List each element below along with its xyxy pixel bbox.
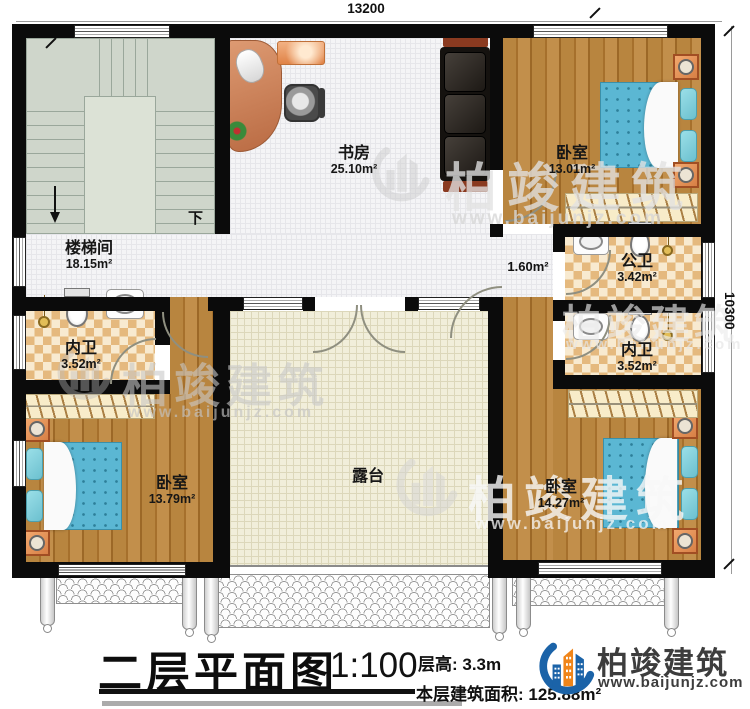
shower-head (38, 316, 50, 328)
watermark-site: www.baijunjz.com (475, 514, 670, 534)
window-hall-left (13, 237, 26, 287)
dimension-line-top (16, 21, 722, 22)
shower-head (662, 245, 673, 256)
label-bedroom-tr: 卧室 13.01m² (549, 145, 596, 176)
title-underline (99, 689, 415, 694)
column-finial (185, 628, 194, 637)
nightstand (24, 416, 50, 442)
watermark-site: www.baijunjz.com (452, 208, 664, 230)
dimension-tick (723, 25, 734, 36)
dimension-top-value: 13200 (330, 1, 402, 16)
label-stairs-down: 下 (188, 207, 203, 228)
nightstand (24, 530, 50, 556)
chair-armrest (318, 88, 325, 118)
column-finial (667, 628, 676, 637)
label-bath-public: 公卫 3.42m² (617, 253, 657, 284)
side-table (277, 41, 325, 65)
watermark-site: www.baijunjz.com (128, 404, 314, 422)
window-bedroom-br-bottom (538, 562, 662, 575)
pillow (26, 490, 43, 522)
window-bedroom-bl-bottom (58, 564, 186, 576)
room-area: 3.42m² (617, 271, 657, 285)
floor-height-label: 层高: 3.3m (418, 650, 501, 675)
window-stairwell-top (74, 25, 170, 38)
room-area: 13.01m² (549, 163, 596, 177)
room-area: 14.27m² (538, 497, 585, 511)
stair-arrow-stem (54, 186, 56, 214)
label-hall-area: 1.60m² (507, 259, 548, 274)
plan-scale: 1:100 (330, 646, 418, 686)
dimension-right-value: 10300 (722, 292, 737, 330)
label-terrace: 露台 (352, 468, 384, 486)
pillow (680, 88, 697, 120)
floorplan-canvas: 柏竣建筑 www.baijunjz.com 柏竣建筑 www.baijunjz.… (0, 0, 750, 709)
sofa-cushion (444, 52, 486, 92)
label-stairwell: 楼梯间 18.15m² (65, 240, 113, 271)
label-bath-right: 内卫 3.52m² (617, 342, 657, 373)
brand-website: www.baijunjz.com (598, 674, 743, 691)
potted-plant (227, 120, 247, 142)
porch-column (664, 570, 679, 630)
porch-column (182, 570, 197, 630)
label-bedroom-br: 卧室 14.27m² (538, 479, 585, 510)
room-name: 公卫 (617, 253, 657, 271)
room-name: 卧室 (538, 479, 585, 497)
office-chair (284, 84, 320, 122)
dimension-tick (589, 7, 600, 18)
room-area: 3.52m² (61, 358, 101, 372)
stair-landing (84, 96, 156, 234)
room-name: 露台 (352, 468, 384, 486)
room-name: 卧室 (549, 145, 596, 163)
dimension-tick (723, 558, 734, 569)
nightstand (673, 54, 699, 80)
title-underline-secondary (102, 701, 462, 706)
room-area: 3.52m² (617, 360, 657, 374)
room-area: 25.10m² (331, 163, 378, 177)
porch-column (40, 570, 55, 626)
blanket (44, 442, 76, 530)
wardrobe-bottom-right (568, 390, 698, 418)
window-bedroom-bl-left (13, 440, 26, 487)
wall-bath-public-left-stub (553, 237, 565, 252)
bed-bottom-left (26, 442, 122, 530)
room-area: 13.79m² (149, 493, 196, 507)
room-name: 楼梯间 (65, 240, 113, 258)
wall-terrace-left (213, 297, 230, 567)
window-bedroom-tr-top (533, 25, 668, 38)
porch-column (204, 574, 219, 636)
nightstand (672, 528, 698, 554)
room-name: 内卫 (61, 340, 101, 358)
stair-right-flight (152, 98, 215, 232)
label-bedroom-bl: 卧室 13.79m² (149, 475, 196, 506)
railing-terrace (212, 574, 490, 628)
stair-upper-flight (88, 38, 154, 98)
wall-bath-right-left-stub2 (553, 360, 565, 375)
window-bath-public-right (702, 242, 715, 298)
wall-terrace-top-seg3 (405, 297, 418, 311)
toilet-tank (64, 288, 90, 297)
column-finial (495, 632, 504, 641)
wall-stair-right (215, 38, 230, 234)
label-study: 书房 25.10m² (331, 145, 378, 176)
porch-column (492, 570, 507, 634)
wall-bath-right-bottom (553, 375, 715, 389)
column-finial (43, 624, 52, 633)
window-bath-left (13, 315, 26, 370)
pillow (26, 448, 43, 480)
room-area: 18.15m² (65, 258, 113, 272)
sofa-cushion (444, 94, 486, 134)
brand-logo-icon (534, 634, 598, 702)
room-name: 书房 (331, 145, 378, 163)
column-finial (519, 628, 528, 637)
stair-arrow-head (50, 212, 60, 223)
porch-column (516, 570, 531, 630)
window-terrace-left (243, 297, 303, 310)
wall-terrace-top-seg1 (230, 297, 243, 311)
watermark-logo-icon (390, 452, 462, 518)
room-name: 内卫 (617, 342, 657, 360)
label-bath-left: 内卫 3.52m² (61, 340, 101, 371)
wall-hall-bottom-left (12, 297, 160, 311)
room-name: 卧室 (149, 475, 196, 493)
